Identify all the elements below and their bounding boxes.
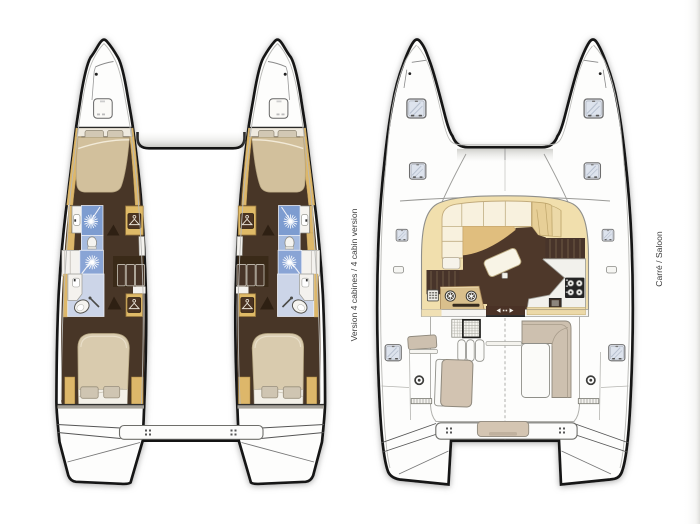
svg-text:Version 4 cabines / 4 cabin: Version 4 cabines / 4 cabin version [349, 208, 359, 341]
svg-text:Carré / Saloon: Carré / Saloon [654, 231, 664, 287]
